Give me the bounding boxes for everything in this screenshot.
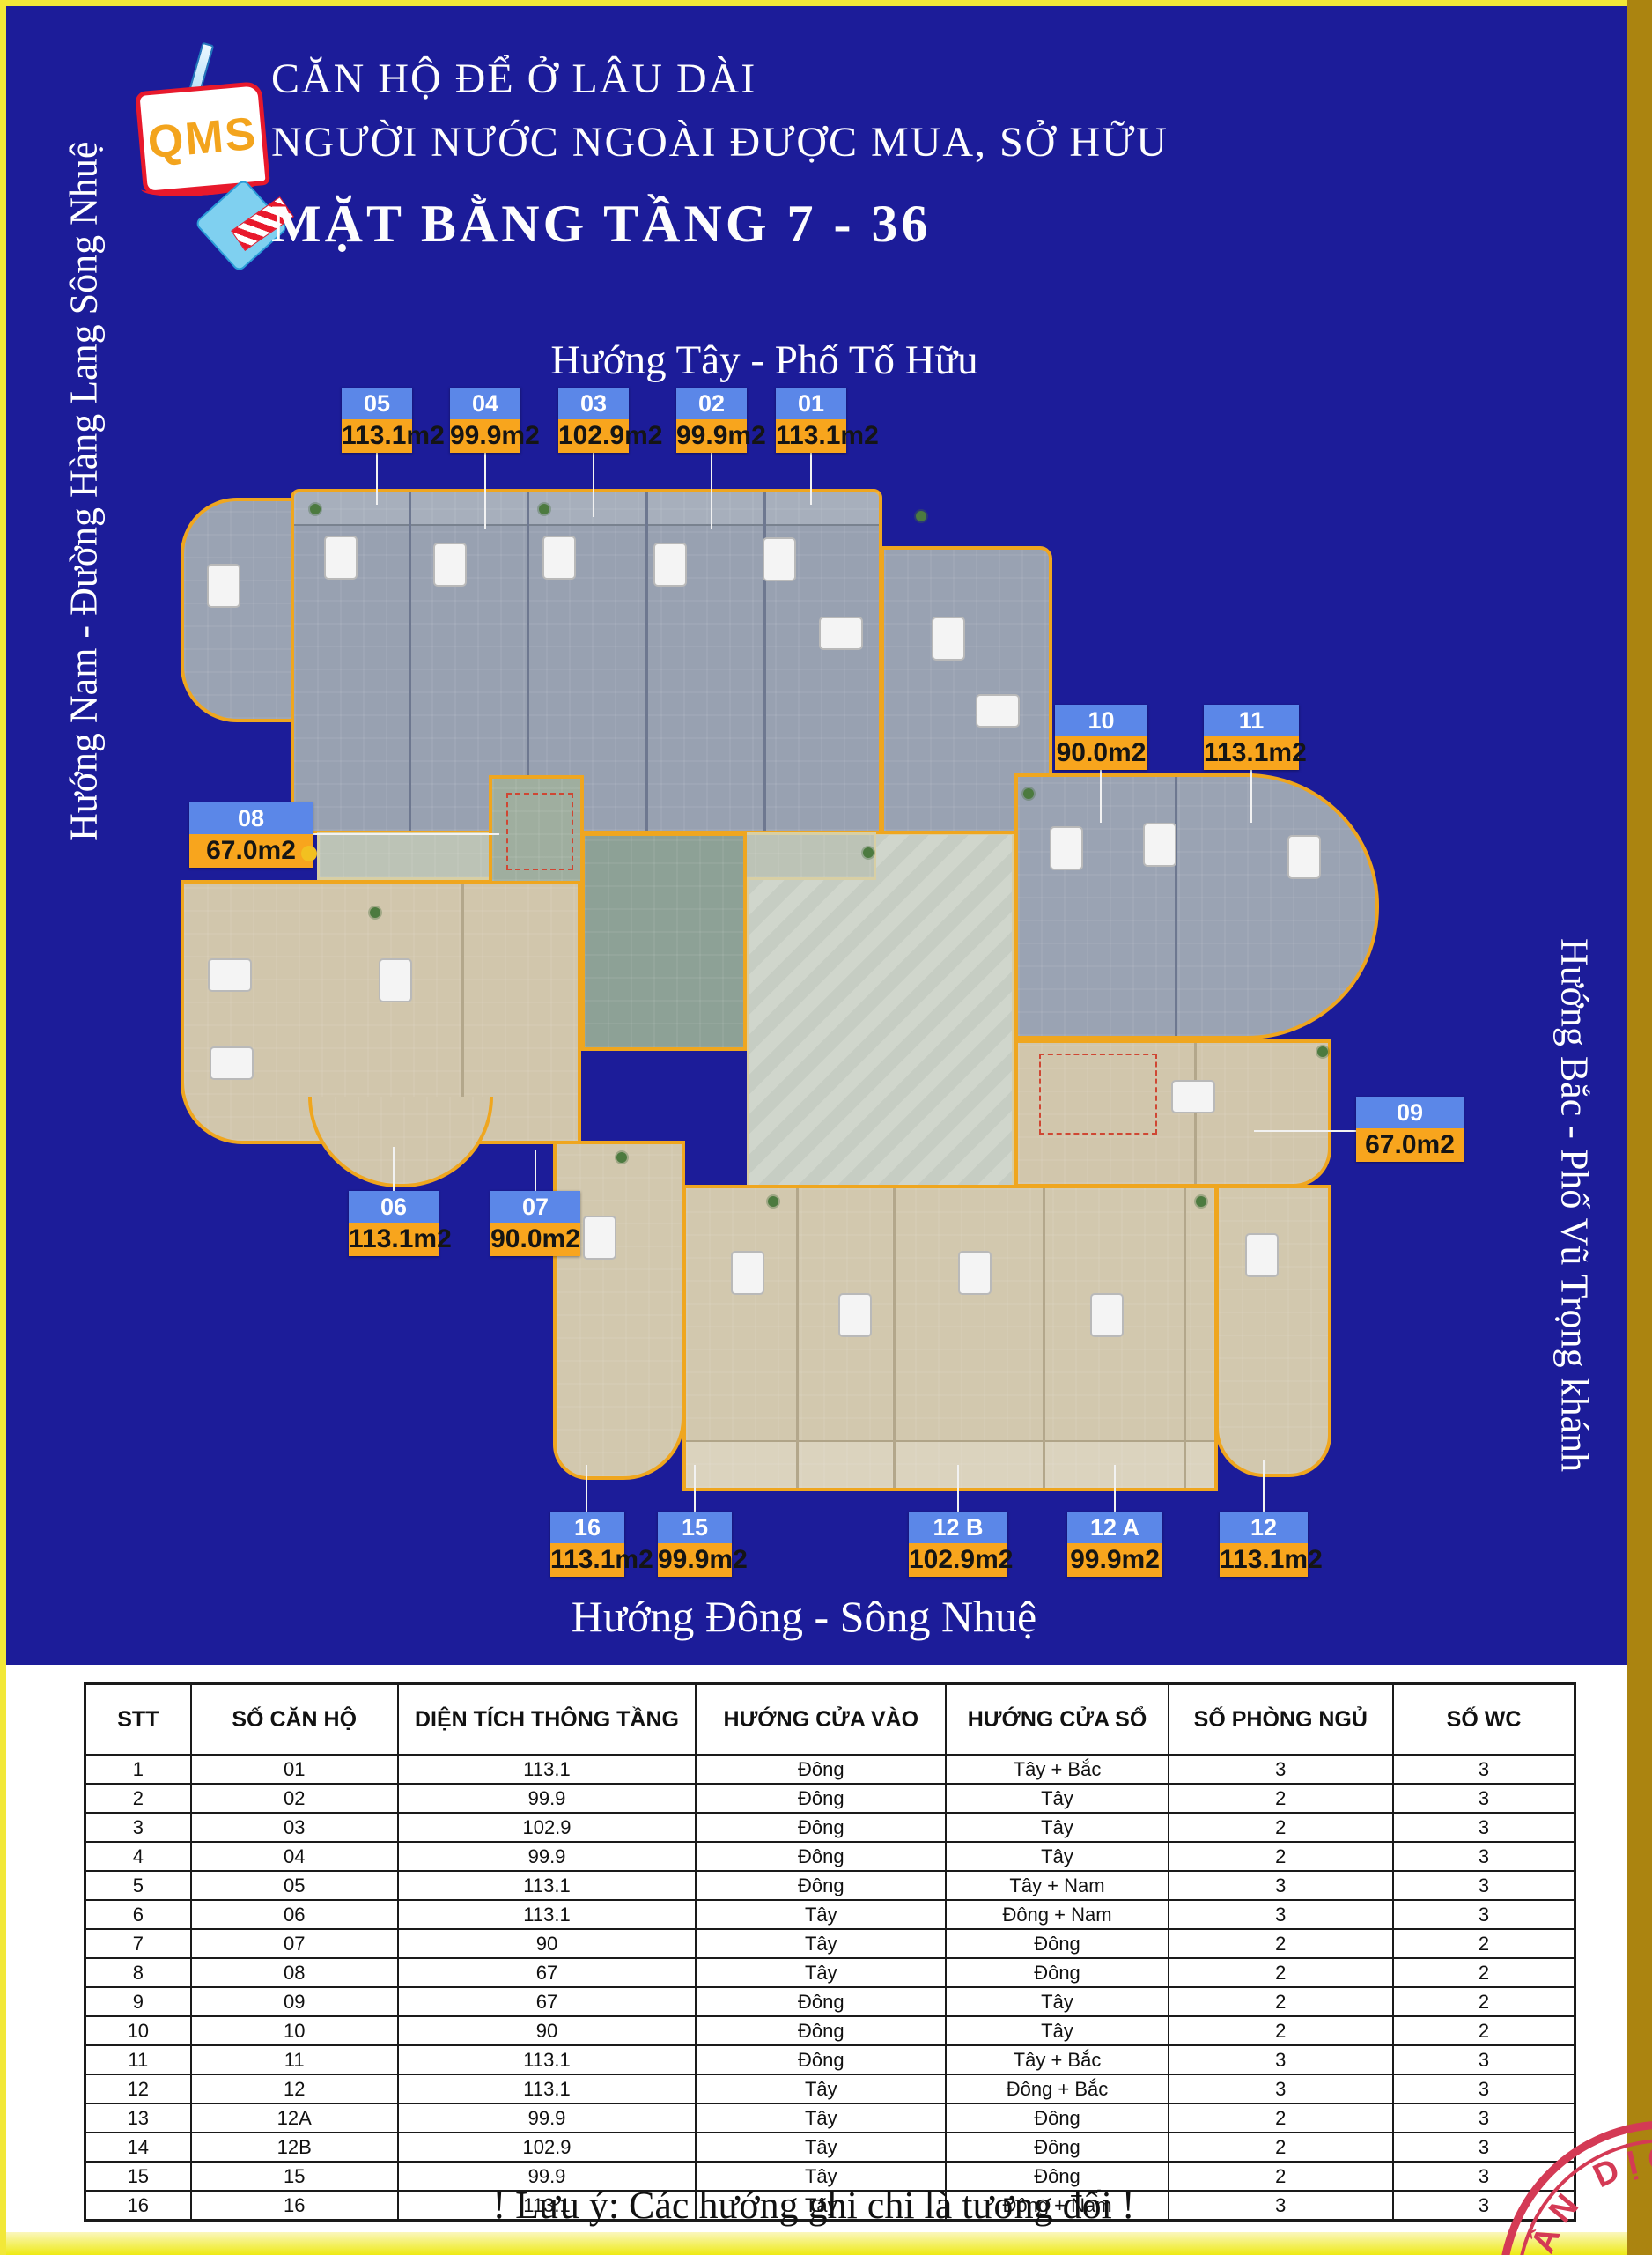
bed-icon xyxy=(583,1216,616,1260)
table-cell: 09 xyxy=(191,1987,398,2016)
unit-label-01: 01113.1m2 xyxy=(776,388,846,453)
plant-icon xyxy=(1317,1046,1328,1057)
footer-note: ! Lưu ý: Các hướng ghi chi là tương đối … xyxy=(0,2183,1627,2228)
table-cell: 4 xyxy=(85,1842,191,1871)
label-line-07 xyxy=(535,1150,536,1191)
table-cell: Đông xyxy=(696,1784,946,1813)
label-line-15 xyxy=(694,1465,696,1512)
table-cell: Đông xyxy=(946,2103,1168,2133)
table-cell: 2 xyxy=(1169,1813,1393,1842)
unit-area-03: 102.9m2 xyxy=(558,419,629,453)
table-cell: 90 xyxy=(398,2016,696,2045)
logo-text: QMS xyxy=(145,107,259,170)
table-cell: 08 xyxy=(191,1958,398,1987)
table-row-1: 101113.1ĐôngTây + Bắc33 xyxy=(85,1755,1575,1784)
table-cell: 6 xyxy=(85,1900,191,1929)
table-header-2: DIỆN TÍCH THÔNG TẦNG xyxy=(398,1684,696,1756)
unit-number-10: 10 xyxy=(1055,705,1147,736)
table-cell: 2 xyxy=(1169,1958,1393,1987)
floorplan-bottom-wing xyxy=(682,1185,1218,1491)
table-cell: 2 xyxy=(1169,1929,1393,1958)
table-cell: Tây xyxy=(696,2074,946,2103)
table-cell: 113.1 xyxy=(398,1755,696,1784)
unit-number-03: 03 xyxy=(558,388,629,419)
table-cell: 8 xyxy=(85,1958,191,1987)
unit-label-15: 1599.9m2 xyxy=(658,1512,732,1577)
table-cell: 2 xyxy=(1393,1929,1575,1958)
plant-icon xyxy=(916,511,926,521)
unit-area-06: 113.1m2 xyxy=(349,1223,439,1256)
label-line-11 xyxy=(1250,768,1252,823)
table-cell: 10 xyxy=(85,2016,191,2045)
unit-number-11: 11 xyxy=(1204,705,1299,736)
bed-icon xyxy=(208,958,252,992)
plant-icon xyxy=(768,1196,778,1207)
unit-divider xyxy=(409,492,411,831)
table-cell: 07 xyxy=(191,1929,398,1958)
frame-bottom xyxy=(0,2232,1627,2255)
unit-label-03: 03102.9m2 xyxy=(558,388,629,453)
table-cell: 14 xyxy=(85,2133,191,2162)
table-cell: 10 xyxy=(191,2016,398,2045)
unit-area-07: 90.0m2 xyxy=(490,1223,580,1256)
table-cell: 2 xyxy=(1169,1784,1393,1813)
bed-icon xyxy=(1287,835,1321,879)
table-cell: Tây xyxy=(946,1784,1168,1813)
unit-area-15: 99.9m2 xyxy=(658,1543,732,1577)
unit-label-05: 05113.1m2 xyxy=(342,388,412,453)
table-cell: 3 xyxy=(1393,1842,1575,1871)
table-cell: 02 xyxy=(191,1784,398,1813)
table-cell: 113.1 xyxy=(398,2074,696,2103)
table-cell: 03 xyxy=(191,1813,398,1842)
table-cell: 67 xyxy=(398,1958,696,1987)
table-cell: 113.1 xyxy=(398,1871,696,1900)
unit-area-12A: 99.9m2 xyxy=(1067,1543,1162,1577)
table-cell: 3 xyxy=(1169,1900,1393,1929)
table-cell: Tây xyxy=(946,1842,1168,1871)
table-row-8: 80867TâyĐông22 xyxy=(85,1958,1575,1987)
unit-divider xyxy=(1184,1188,1186,1488)
table-cell: 2 xyxy=(85,1784,191,1813)
bed-icon xyxy=(976,694,1020,728)
unit-number-12: 12 xyxy=(1220,1512,1308,1543)
plant-icon xyxy=(1196,1196,1206,1207)
table-row-7: 70790TâyĐông22 xyxy=(85,1929,1575,1958)
unit-label-04: 0499.9m2 xyxy=(450,388,520,453)
table-cell: 9 xyxy=(85,1987,191,2016)
table-cell: Đông xyxy=(696,1842,946,1871)
unit-area-10: 90.0m2 xyxy=(1055,736,1147,770)
table-panel: STTSỐ CĂN HỘDIỆN TÍCH THÔNG TẦNGHƯỚNG CỬ… xyxy=(0,1665,1627,2255)
unit-area-11: 113.1m2 xyxy=(1204,736,1299,770)
bed-icon xyxy=(324,536,358,580)
table-header-1: SỐ CĂN HỘ xyxy=(191,1684,398,1756)
unit-label-16: 16113.1m2 xyxy=(550,1512,624,1577)
table-cell: 05 xyxy=(191,1871,398,1900)
table-cell: Tây xyxy=(696,1929,946,1958)
table-cell: Tây xyxy=(696,1958,946,1987)
table-header-5: SỐ PHÒNG NGỦ xyxy=(1169,1684,1393,1756)
label-line-09 xyxy=(1254,1130,1356,1132)
title-line-1: CĂN HỘ ĐỂ Ở LÂU DÀI xyxy=(271,55,756,103)
unit-number-12A: 12 A xyxy=(1067,1512,1162,1543)
unit-divider xyxy=(1043,1188,1045,1488)
bed-icon xyxy=(819,617,863,650)
label-line-16 xyxy=(586,1465,587,1512)
table-cell: Đông xyxy=(696,2016,946,2045)
unit-divider xyxy=(1194,1043,1197,1184)
table-cell: Tây xyxy=(946,1813,1168,1842)
table-cell: 3 xyxy=(85,1813,191,1842)
bed-icon xyxy=(542,536,576,580)
bed-icon xyxy=(1050,826,1083,870)
unit-number-16: 16 xyxy=(550,1512,624,1543)
table-row-2: 20299.9ĐôngTây23 xyxy=(85,1784,1575,1813)
table-cell: 12 xyxy=(85,2074,191,2103)
unit-area-01: 113.1m2 xyxy=(776,419,846,453)
table-cell: 12B xyxy=(191,2133,398,2162)
unit-number-07: 07 xyxy=(490,1191,580,1223)
table-cell: 99.9 xyxy=(398,1784,696,1813)
table-cell: 3 xyxy=(1393,1784,1575,1813)
table-cell: 04 xyxy=(191,1842,398,1871)
table-cell: 67 xyxy=(398,1987,696,2016)
unit-number-12B: 12 B xyxy=(909,1512,1007,1543)
table-cell: 7 xyxy=(85,1929,191,1958)
unit-label-12: 12113.1m2 xyxy=(1220,1512,1308,1577)
bed-icon xyxy=(932,617,965,661)
bed-icon xyxy=(1090,1293,1124,1337)
unit-label-02: 0299.9m2 xyxy=(676,388,747,453)
label-dot-08 xyxy=(301,846,317,861)
floorplan-right-wing-top xyxy=(1014,773,1379,1039)
table-cell: 102.9 xyxy=(398,2133,696,2162)
table-row-5: 505113.1ĐôngTây + Nam33 xyxy=(85,1871,1575,1900)
table-cell: Tây xyxy=(696,1900,946,1929)
table-header-0: STT xyxy=(85,1684,191,1756)
table-cell: 3 xyxy=(1393,2045,1575,2074)
floorplan-unit12-block xyxy=(1215,1185,1331,1477)
table-row-6: 606113.1TâyĐông + Nam33 xyxy=(85,1900,1575,1929)
bed-icon xyxy=(379,958,412,1002)
table-cell: 102.9 xyxy=(398,1813,696,1842)
table-cell: 3 xyxy=(1393,1755,1575,1784)
table-cell: 3 xyxy=(1393,1813,1575,1842)
table-cell: 06 xyxy=(191,1900,398,1929)
table-cell: Đông xyxy=(696,1987,946,2016)
label-line-12 xyxy=(1263,1460,1265,1512)
unit-area-12: 113.1m2 xyxy=(1220,1543,1308,1577)
table-cell: 2 xyxy=(1393,1958,1575,1987)
unit-label-09: 0967.0m2 xyxy=(1356,1097,1464,1162)
title-line-3: MẶT BẰNG TẦNG 7 - 36 xyxy=(271,194,932,255)
table-cell: Tây + Bắc xyxy=(946,2045,1168,2074)
unit-area-08: 67.0m2 xyxy=(189,834,313,868)
table-header-row: STTSỐ CĂN HỘDIỆN TÍCH THÔNG TẦNGHƯỚNG CỬ… xyxy=(85,1684,1575,1756)
balcony-strip xyxy=(686,1440,1214,1488)
table-row-12: 1212113.1TâyĐông + Bắc33 xyxy=(85,2074,1575,2103)
unit-divider xyxy=(796,1188,799,1488)
table-cell: 3 xyxy=(1169,1871,1393,1900)
frame-top xyxy=(0,0,1627,6)
label-line-10 xyxy=(1100,768,1102,823)
table-cell: Tây + Nam xyxy=(946,1871,1168,1900)
unit-divider xyxy=(1175,777,1177,1036)
table-header-3: HƯỚNG CỬA VÀO xyxy=(696,1684,946,1756)
bed-icon xyxy=(1245,1233,1279,1277)
unit-label-10: 1090.0m2 xyxy=(1055,705,1147,770)
unit-number-01: 01 xyxy=(776,388,846,419)
table-row-11: 1111113.1ĐôngTây + Bắc33 xyxy=(85,2045,1575,2074)
plant-icon xyxy=(370,907,380,918)
unit-divider xyxy=(645,492,648,831)
table-row-10: 101090ĐôngTây22 xyxy=(85,2016,1575,2045)
table-row-14: 1412B102.9TâyĐông23 xyxy=(85,2133,1575,2162)
table-cell: 2 xyxy=(1169,2016,1393,2045)
unit-label-11: 11113.1m2 xyxy=(1204,705,1299,770)
plant-icon xyxy=(310,504,321,514)
table-cell: 3 xyxy=(1169,2074,1393,2103)
table-cell: 2 xyxy=(1169,2133,1393,2162)
table-cell: 11 xyxy=(85,2045,191,2074)
table-cell: Tây xyxy=(696,2103,946,2133)
bed-icon xyxy=(653,543,687,587)
table-cell: Đông xyxy=(696,1813,946,1842)
table-row-13: 1312A99.9TâyĐông23 xyxy=(85,2103,1575,2133)
table-cell: 3 xyxy=(1393,1871,1575,1900)
floorplan-elevator-core xyxy=(581,832,747,1051)
table-cell: 3 xyxy=(1393,2103,1575,2133)
unit-label-08: 0867.0m2 xyxy=(189,802,313,868)
bed-icon xyxy=(731,1251,764,1295)
unit-number-08: 08 xyxy=(189,802,313,834)
table-cell: Đông xyxy=(946,1929,1168,1958)
unit-area-02: 99.9m2 xyxy=(676,419,747,453)
unit-number-06: 06 xyxy=(349,1191,439,1223)
direction-west: Hướng Tây - Phố Tố Hữu xyxy=(324,336,1205,384)
unit-number-05: 05 xyxy=(342,388,412,419)
table-cell: 2 xyxy=(1169,1987,1393,2016)
table-cell: Tây xyxy=(946,2016,1168,2045)
table-cell: 1 xyxy=(85,1755,191,1784)
table-cell: Đông + Nam xyxy=(946,1900,1168,1929)
label-line-04 xyxy=(484,452,486,529)
plant-icon xyxy=(539,504,549,514)
table-cell: 3 xyxy=(1169,1755,1393,1784)
table-header-6: SỐ WC xyxy=(1393,1684,1575,1756)
table-cell: 99.9 xyxy=(398,1842,696,1871)
table-cell: Đông xyxy=(946,1958,1168,1987)
units-table: STTSỐ CĂN HỘDIỆN TÍCH THÔNG TẦNGHƯỚNG CỬ… xyxy=(84,1682,1576,2222)
dashed-room-outline xyxy=(1039,1054,1157,1135)
floorplan-central-lobby xyxy=(747,832,1014,1188)
label-line-06 xyxy=(393,1147,395,1191)
label-line-12A xyxy=(1114,1465,1116,1512)
table-cell: Đông xyxy=(696,1871,946,1900)
bed-icon xyxy=(207,564,240,608)
table-cell: 11 xyxy=(191,2045,398,2074)
table-cell: Đông + Bắc xyxy=(946,2074,1168,2103)
table-header-4: HƯỚNG CỬA SỔ xyxy=(946,1684,1168,1756)
poster-page: QMS CĂN HỘ ĐỂ Ở LÂU DÀI NGƯỜI NƯỚC NGOÀI… xyxy=(0,0,1652,2255)
unit-number-15: 15 xyxy=(658,1512,732,1543)
unit-number-02: 02 xyxy=(676,388,747,419)
table-cell: 99.9 xyxy=(398,2103,696,2133)
table-cell: 90 xyxy=(398,1929,696,1958)
table-cell: 113.1 xyxy=(398,1900,696,1929)
label-line-12B xyxy=(957,1465,959,1512)
title-line-2: NGƯỜI NƯỚC NGOÀI ĐƯỢC MUA, SỞ HỮU xyxy=(271,118,1169,166)
floorplan-topleft-bay xyxy=(181,498,304,722)
table-row-3: 303102.9ĐôngTây23 xyxy=(85,1813,1575,1842)
unit-area-05: 113.1m2 xyxy=(342,419,412,453)
table-cell: 2 xyxy=(1169,1842,1393,1871)
unit-label-12B: 12 B102.9m2 xyxy=(909,1512,1007,1577)
table-cell: 3 xyxy=(1393,1900,1575,1929)
label-line-01 xyxy=(810,452,812,505)
label-line-03 xyxy=(593,452,594,517)
unit-label-06: 06113.1m2 xyxy=(349,1191,439,1256)
frame-right xyxy=(1627,0,1652,2255)
table-cell: 5 xyxy=(85,1871,191,1900)
unit-area-16: 113.1m2 xyxy=(550,1543,624,1577)
label-line-05 xyxy=(376,452,378,505)
bed-icon xyxy=(1143,823,1176,867)
table-cell: Tây xyxy=(946,1987,1168,2016)
table-cell: Tây + Bắc xyxy=(946,1755,1168,1784)
bed-icon xyxy=(210,1046,254,1080)
unit-number-09: 09 xyxy=(1356,1097,1464,1128)
unit-label-07: 0790.0m2 xyxy=(490,1191,580,1256)
unit-label-12A: 12 A99.9m2 xyxy=(1067,1512,1162,1577)
table-cell: 113.1 xyxy=(398,2045,696,2074)
table-cell: 3 xyxy=(1169,2045,1393,2074)
dashed-room-outline xyxy=(506,793,573,870)
table-row-4: 40499.9ĐôngTây23 xyxy=(85,1842,1575,1871)
table-cell: 12A xyxy=(191,2103,398,2133)
bed-icon xyxy=(763,537,796,581)
unit-area-09: 67.0m2 xyxy=(1356,1128,1464,1162)
unit-area-12B: 102.9m2 xyxy=(909,1543,1007,1577)
bed-icon xyxy=(838,1293,872,1337)
floorplan-midleft-bay xyxy=(308,1097,493,1187)
table-cell: Đông xyxy=(696,2045,946,2074)
bed-icon xyxy=(1171,1080,1215,1113)
table-cell: 01 xyxy=(191,1755,398,1784)
table-cell: Tây xyxy=(696,2133,946,2162)
unit-area-04: 99.9m2 xyxy=(450,419,520,453)
table-cell: 2 xyxy=(1393,2016,1575,2045)
table-cell: 3 xyxy=(1393,2074,1575,2103)
balcony-strip xyxy=(294,492,879,526)
label-line-02 xyxy=(711,452,712,529)
table-cell: 2 xyxy=(1393,1987,1575,2016)
table-cell: Đông xyxy=(946,2133,1168,2162)
frame-left xyxy=(0,0,6,2255)
plant-icon xyxy=(1023,788,1034,799)
table-row-9: 90967ĐôngTây22 xyxy=(85,1987,1575,2016)
table-cell: Đông xyxy=(696,1755,946,1784)
table-cell: 13 xyxy=(85,2103,191,2133)
unit-number-04: 04 xyxy=(450,388,520,419)
bed-icon xyxy=(958,1251,992,1295)
label-line-08 xyxy=(313,833,499,835)
plant-icon xyxy=(616,1152,627,1163)
direction-east: Hướng Đông - Sông Nhuệ xyxy=(364,1591,1244,1642)
plant-icon xyxy=(863,847,874,858)
table-cell: 12 xyxy=(191,2074,398,2103)
bed-icon xyxy=(433,543,467,587)
unit-divider xyxy=(893,1188,896,1488)
table-cell: 2 xyxy=(1169,2103,1393,2133)
